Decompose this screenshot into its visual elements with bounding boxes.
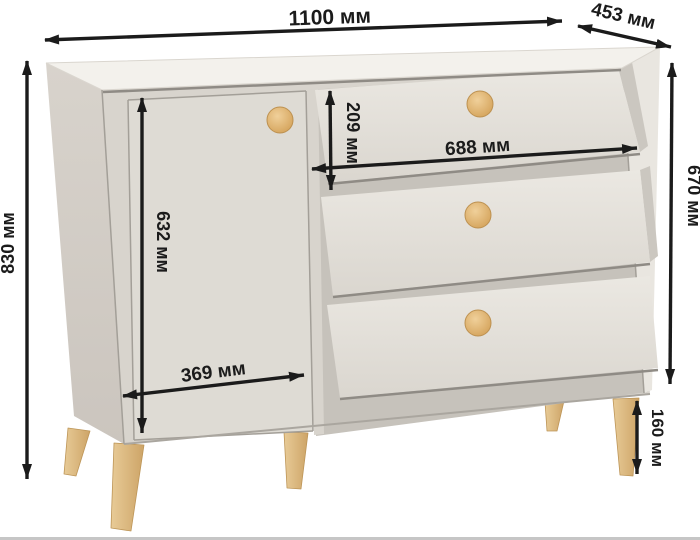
dim-top-drawer-height-arrow <box>330 91 331 190</box>
dim-body-height: 670 мм <box>670 63 700 384</box>
dim-depth-label: 453 мм <box>589 0 657 34</box>
furniture-dimension-diagram: 1100 мм 453 мм 830 мм 670 мм 209 мм 688 … <box>0 0 700 540</box>
dim-overall-height-label: 830 мм <box>0 212 18 274</box>
dim-overall-width-label: 1100 мм <box>288 5 371 31</box>
leg-front-right <box>613 398 639 476</box>
drawer-3-knob <box>465 310 491 336</box>
drawer-2-knob <box>465 202 491 228</box>
dim-leg-height-label: 160 мм <box>648 409 667 467</box>
dim-body-height-label: 670 мм <box>684 165 700 227</box>
dim-overall-height: 830 мм <box>0 61 27 479</box>
leg-back-left <box>64 428 90 476</box>
dim-depth: 453 мм <box>578 0 671 47</box>
dim-leg-height: 160 мм <box>637 401 667 474</box>
dim-door-height-label: 632 мм <box>153 211 173 273</box>
door-knob <box>267 107 293 133</box>
leg-front-left <box>111 443 144 531</box>
dim-overall-width: 1100 мм <box>45 5 562 40</box>
leg-back-right <box>545 401 564 431</box>
drawer-1-knob <box>467 91 493 117</box>
dim-depth-arrow <box>578 26 671 47</box>
dim-top-drawer-height-label: 209 мм <box>343 102 363 164</box>
leg-middle <box>284 432 308 489</box>
diagram-canvas: 1100 мм 453 мм 830 мм 670 мм 209 мм 688 … <box>0 0 700 540</box>
dim-body-height-arrow <box>670 63 672 384</box>
